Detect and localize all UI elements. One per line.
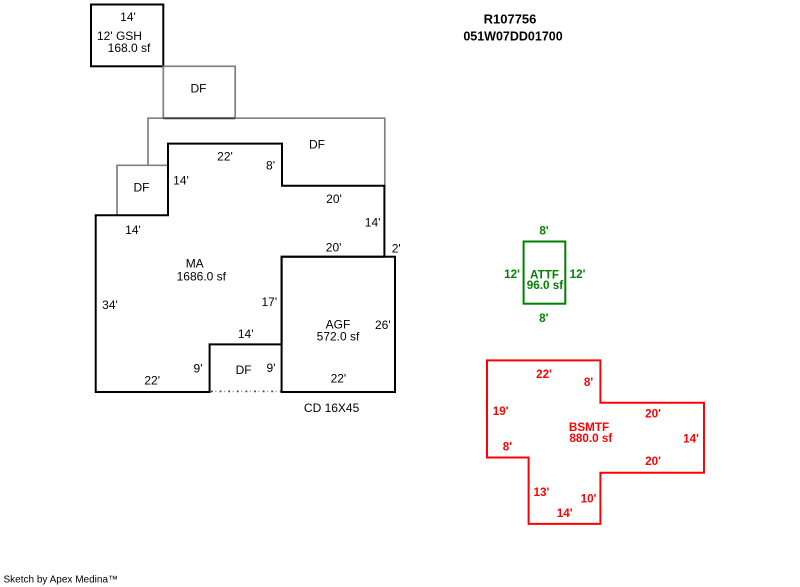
svg-text:8': 8' <box>584 376 594 389</box>
svg-text:19': 19' <box>493 405 509 418</box>
svg-text:26': 26' <box>375 318 391 332</box>
svg-text:DF: DF <box>134 181 150 195</box>
svg-text:22': 22' <box>144 374 160 388</box>
svg-text:14': 14' <box>238 327 254 341</box>
svg-text:DF: DF <box>236 363 252 377</box>
svg-text:14': 14' <box>173 174 189 188</box>
svg-text:572.0 sf: 572.0 sf <box>317 330 360 344</box>
svg-text:MA: MA <box>186 257 204 271</box>
svg-text:9': 9' <box>194 362 203 376</box>
svg-text:96.0 sf: 96.0 sf <box>527 279 563 292</box>
svg-text:CD 16X45: CD 16X45 <box>304 401 360 415</box>
svg-text:051W07DD01700: 051W07DD01700 <box>463 30 562 44</box>
svg-text:DF: DF <box>309 138 325 152</box>
svg-text:12': 12' <box>504 268 520 281</box>
svg-text:2': 2' <box>392 242 401 256</box>
svg-text:22': 22' <box>536 368 552 381</box>
svg-text:20': 20' <box>645 408 661 421</box>
svg-text:14': 14' <box>365 216 381 230</box>
svg-text:14': 14' <box>120 10 136 24</box>
svg-text:22': 22' <box>331 372 347 386</box>
svg-text:20': 20' <box>326 241 342 255</box>
svg-text:168.0 sf: 168.0 sf <box>108 41 151 55</box>
svg-text:13': 13' <box>534 486 550 499</box>
svg-text:9': 9' <box>267 361 276 375</box>
svg-text:17': 17' <box>261 295 277 309</box>
svg-text:880.0 sf: 880.0 sf <box>569 432 612 445</box>
svg-text:8': 8' <box>503 441 513 454</box>
svg-text:8': 8' <box>539 312 549 325</box>
svg-text:12': 12' <box>570 268 586 281</box>
svg-text:14': 14' <box>557 507 573 520</box>
svg-text:Sketch by Apex Medina™: Sketch by Apex Medina™ <box>4 574 119 585</box>
svg-text:DF: DF <box>191 82 207 96</box>
svg-text:R107756: R107756 <box>484 12 537 27</box>
svg-text:34': 34' <box>102 298 118 312</box>
svg-text:22': 22' <box>217 150 233 164</box>
svg-text:20': 20' <box>645 455 661 468</box>
svg-text:14': 14' <box>683 433 699 446</box>
svg-text:14': 14' <box>125 223 141 237</box>
svg-text:10': 10' <box>581 493 597 506</box>
svg-text:1686.0 sf: 1686.0 sf <box>177 270 227 284</box>
svg-text:8': 8' <box>539 225 549 238</box>
svg-text:20': 20' <box>326 192 342 206</box>
svg-text:8': 8' <box>266 159 275 173</box>
